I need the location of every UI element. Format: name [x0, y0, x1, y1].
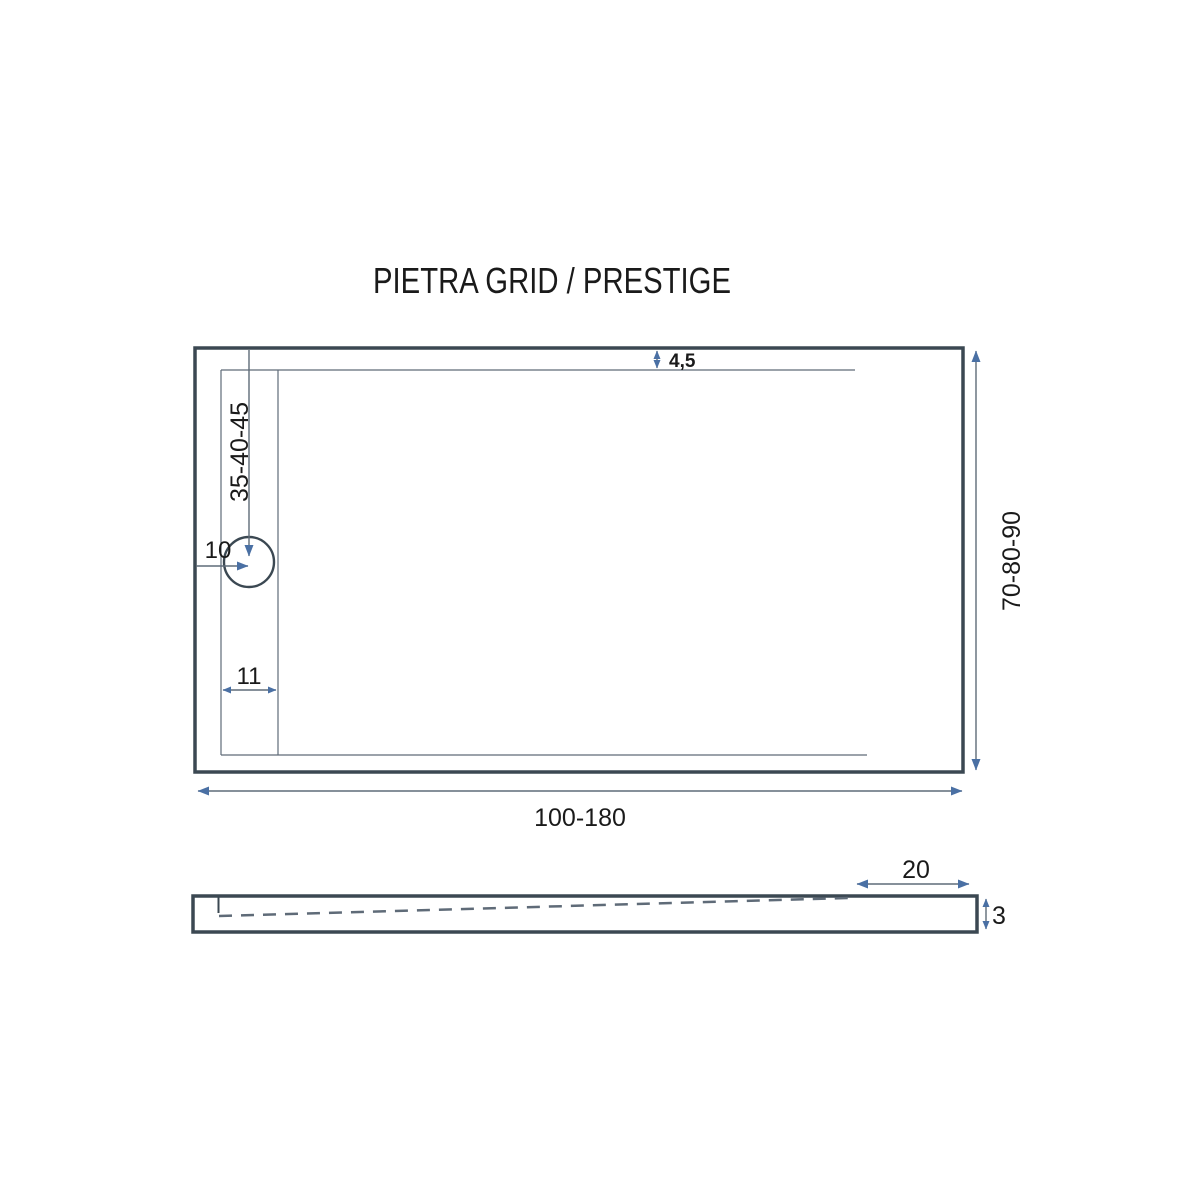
- dim-length-range-label: 100-180: [534, 804, 626, 832]
- dim-channel-width-label: 11: [237, 663, 262, 690]
- dim-drain-left-label: 10: [205, 537, 232, 564]
- shower-tray-drawing: PIETRA GRID / PRESTIGE 35-40-45 10 4,5: [0, 0, 1200, 1200]
- side-view: 20 3: [193, 856, 1006, 932]
- dim-rim-offset-label: 4,5: [669, 351, 696, 372]
- tray-outer-outline: [195, 348, 963, 772]
- dim-drain-top-label: 35-40-45: [226, 402, 254, 502]
- dim-width-range-label: 70-80-90: [998, 511, 1026, 611]
- drawing-title: PIETRA GRID / PRESTIGE: [373, 260, 731, 301]
- dim-thickness-label: 3: [992, 902, 1006, 930]
- top-view: 35-40-45 10 4,5 11 70-80-90 100-180: [195, 348, 1026, 832]
- dim-flat-edge-label: 20: [902, 856, 930, 884]
- slope-dashed-line: [219, 898, 848, 916]
- technical-drawing-page: PIETRA GRID / PRESTIGE 35-40-45 10 4,5: [0, 0, 1200, 1200]
